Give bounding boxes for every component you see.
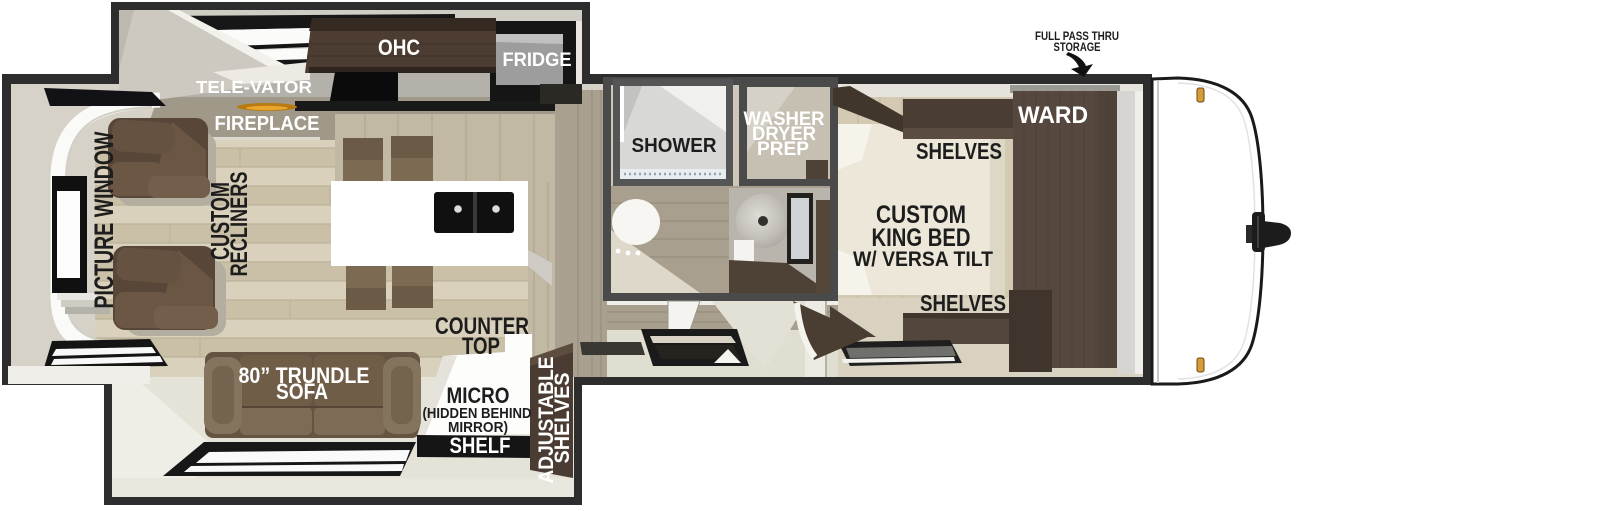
svg-text:SHELVES: SHELVES: [916, 138, 1002, 164]
svg-text:STORAGE: STORAGE: [1054, 42, 1101, 54]
svg-text:TOP: TOP: [462, 333, 500, 360]
svg-text:OHC: OHC: [378, 35, 420, 60]
svg-text:PICTURE WINDOW: PICTURE WINDOW: [89, 131, 119, 308]
svg-text:TELE-VATOR: TELE-VATOR: [196, 77, 312, 97]
svg-text:FIREPLACE: FIREPLACE: [215, 113, 320, 135]
svg-text:MIRROR): MIRROR): [448, 419, 508, 436]
svg-text:SHELF: SHELF: [450, 433, 511, 458]
svg-text:WARD: WARD: [1018, 102, 1088, 129]
svg-text:RECLINERS: RECLINERS: [226, 172, 253, 277]
svg-text:SHELVES: SHELVES: [551, 373, 574, 464]
svg-text:W/ VERSA TILT: W/ VERSA TILT: [853, 248, 993, 271]
svg-text:SHOWER: SHOWER: [632, 135, 718, 157]
svg-text:FRIDGE: FRIDGE: [503, 50, 572, 71]
svg-text:PREP: PREP: [757, 139, 809, 160]
svg-text:SHELVES: SHELVES: [920, 290, 1006, 316]
svg-text:SOFA: SOFA: [276, 379, 328, 404]
